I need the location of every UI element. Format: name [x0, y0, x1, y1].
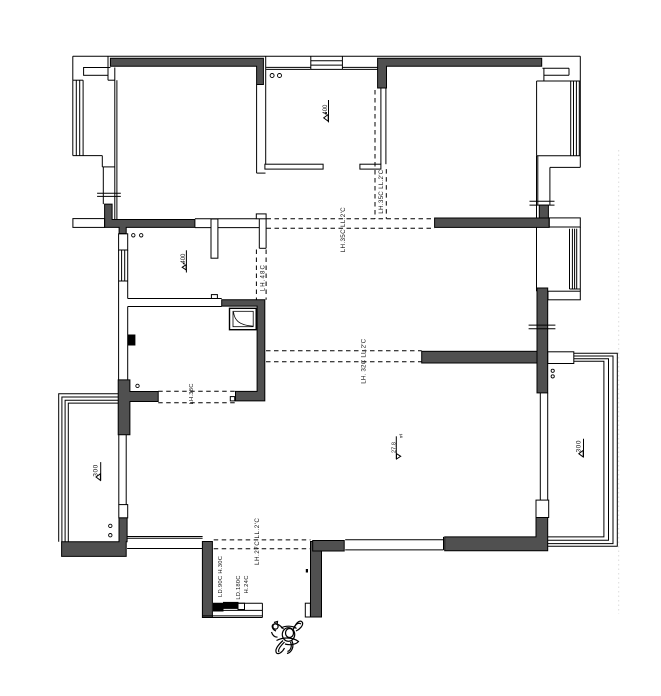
svg-text:LD.180C: LD.180C	[236, 576, 242, 600]
svg-text:27.8: 27.8	[391, 442, 397, 453]
svg-text:LH. 32C LL.2'C: LH. 32C LL.2'C	[361, 338, 368, 383]
svg-text:LH.27C LL.2'C: LH.27C LL.2'C	[254, 518, 261, 565]
svg-text:LH.48C: LH.48C	[261, 265, 267, 292]
svg-text:300: 300	[93, 464, 100, 476]
svg-text:H.24C: H.24C	[244, 576, 250, 594]
svg-text:LH.35C LL.2'C: LH.35C LL.2'C	[378, 169, 385, 213]
svg-text:400: 400	[323, 104, 329, 115]
svg-text:LH.38C: LH.38C	[189, 384, 195, 405]
svg-text:400: 400	[181, 253, 187, 264]
svg-text:300: 300	[575, 440, 582, 452]
svg-text:LD.90C H.30C: LD.90C H.30C	[218, 556, 224, 597]
svg-text:LH.35C LL.2'C: LH.35C LL.2'C	[340, 207, 347, 252]
svg-text:m²: m²	[398, 433, 404, 438]
